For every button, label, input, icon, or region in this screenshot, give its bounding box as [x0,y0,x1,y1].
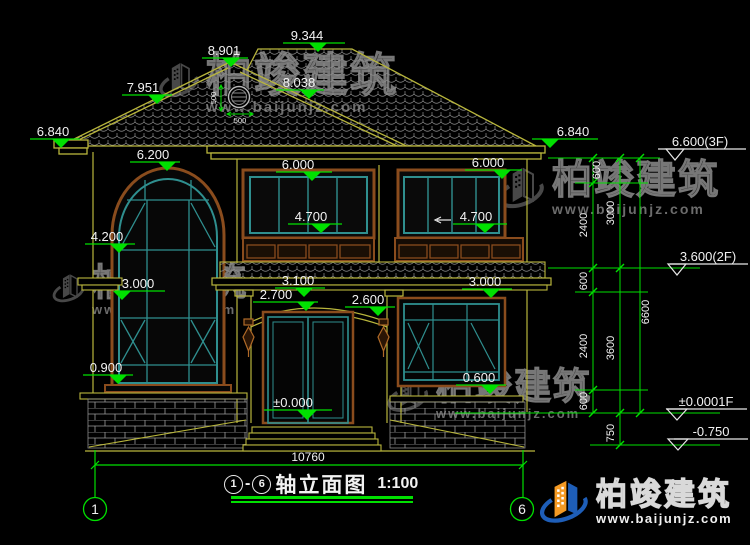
wall-lamp-left [243,319,254,357]
elev-label: 9.344 [291,28,324,43]
axis-bubble-right: 6 [511,498,534,521]
round-vent [227,85,251,109]
level-label: 6.600(3F) [672,134,728,149]
svg-text:3000: 3000 [605,201,617,225]
elev-label: 3.100 [282,273,315,288]
title-name: 轴立面图 [275,469,367,499]
footer-logo: 柏竣建筑 www.baijunjz.com [536,472,732,532]
elev-label: 7.951 [127,80,160,95]
elev-label: 6.840 [557,124,590,139]
axis-bubble-right-number: 6 [518,501,526,517]
bay-ledge [78,278,122,290]
level-label: 3.600(2F) [680,249,736,264]
footer-logo-brand: 柏竣建筑 [596,479,732,510]
svg-text:2400: 2400 [578,334,590,358]
svg-text:600: 600 [578,392,590,410]
elev-label: 8.901 [208,43,241,58]
elev-label: 2.600 [352,292,385,307]
elev-label: 2.700 [260,287,293,302]
title-underline-2 [231,501,413,503]
title-axis-start: 1 [224,475,243,494]
elev-label: 6.200 [137,147,170,162]
title-separator: - [245,475,250,493]
footer-logo-icon [536,472,590,532]
elevation-drawing: 500 500 [0,0,750,545]
elev-label: 0.600 [463,370,496,385]
vent-dim-width: 500 [234,116,247,125]
title-scale: 1:100 [377,475,418,493]
svg-text:750: 750 [605,424,617,442]
svg-text:6600: 6600 [640,300,652,324]
elev-label: 4.700 [295,209,328,224]
vent-dim-height: 500 [209,92,218,105]
footer-logo-url: www.baijunjz.com [596,511,732,526]
chain-dim-labels: 600 2400 3000 600 2400 3600 6600 600 750 [578,161,652,442]
elev-label: 3.000 [469,274,502,289]
axis-bubble-left-number: 1 [91,501,99,517]
title-axis-end: 6 [252,475,271,494]
level-label: ±0.0001F [679,394,734,409]
elev-label: 8.038 [283,75,316,90]
axis-bubble-left: 1 [84,498,107,521]
main-roof [54,49,545,159]
cad-elevation-screenshot: 柏竣建筑 www.baijunjz.com 柏竣建筑 www.baijunjz.… [0,0,750,545]
level-label: -0.750 [693,424,730,439]
elev-label: 4.700 [460,209,493,224]
elev-label: 6.000 [472,155,505,170]
elev-label: 4.200 [91,229,124,244]
elev-label: 3.000 [122,276,155,291]
overall-width-label: 10760 [291,450,325,464]
entry-steps [243,427,381,451]
title-underline [231,496,413,499]
svg-text:3600: 3600 [605,336,617,360]
drawing-title: 1 - 6 轴立面图 1:100 [224,469,418,499]
elev-label: 6.000 [282,157,315,172]
elev-label: ±0.000 [273,395,313,410]
elev-label: 0.900 [90,360,123,375]
svg-text:600: 600 [591,161,603,179]
elev-label: 6.840 [37,124,70,139]
svg-text:2400: 2400 [578,213,590,237]
level-flags: 6.600(3F) 3.600(2F) ±0.0001F -0.750 [658,134,748,450]
svg-text:600: 600 [578,272,590,290]
